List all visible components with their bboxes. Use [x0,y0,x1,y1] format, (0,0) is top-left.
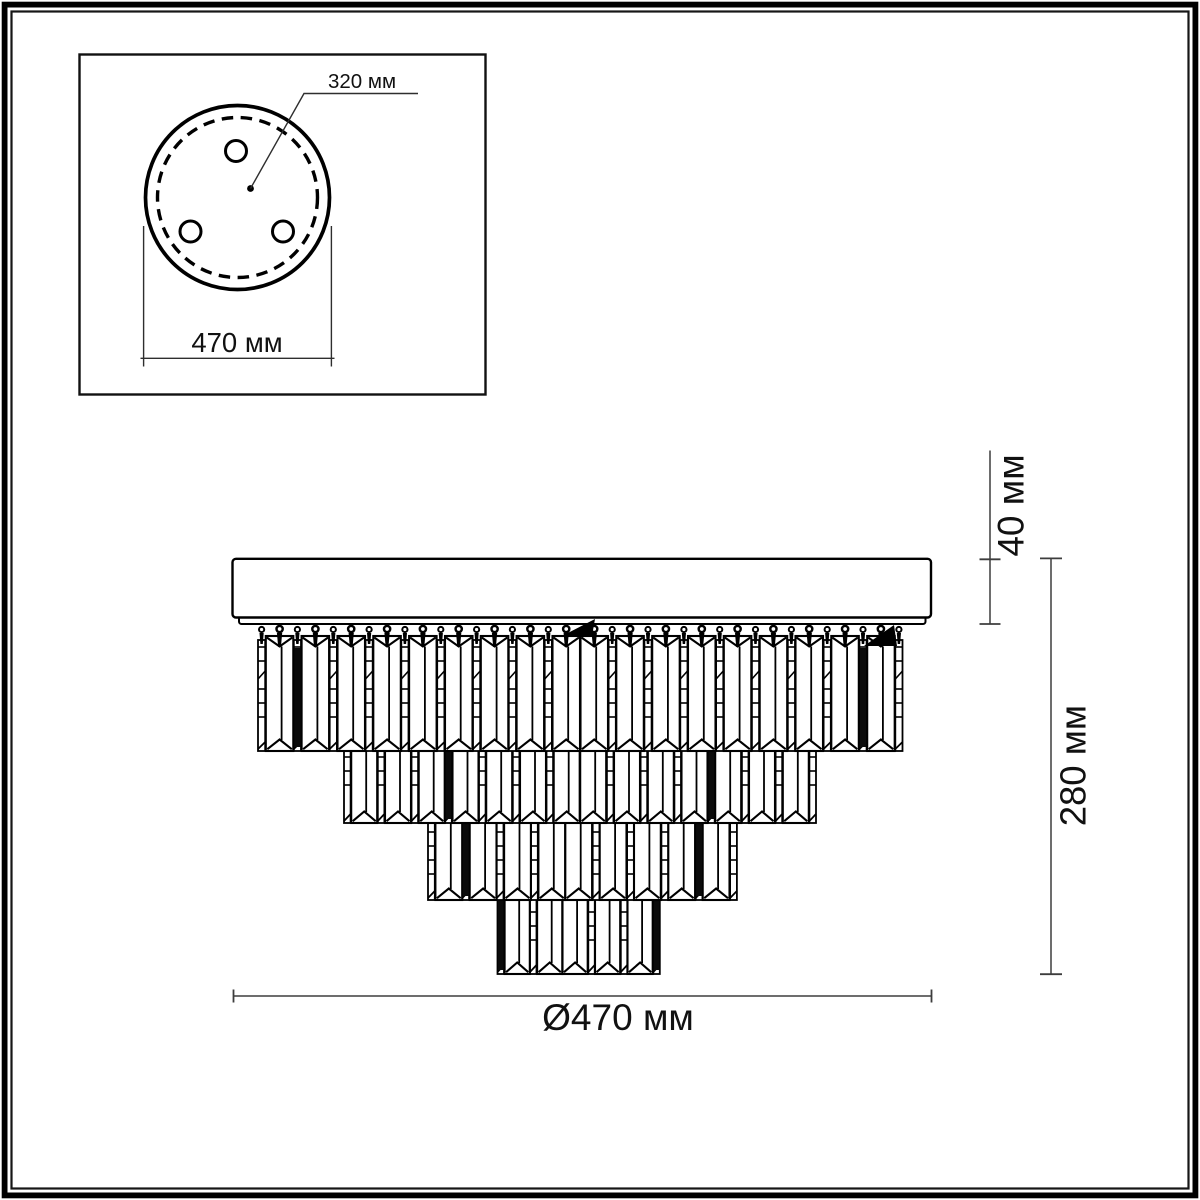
svg-text:470 мм: 470 мм [191,327,282,358]
svg-text:320 мм: 320 мм [328,70,396,93]
svg-text:280 мм: 280 мм [1053,705,1094,826]
svg-text:40 мм: 40 мм [991,454,1032,556]
svg-text:Ø470 мм: Ø470 мм [542,997,694,1038]
